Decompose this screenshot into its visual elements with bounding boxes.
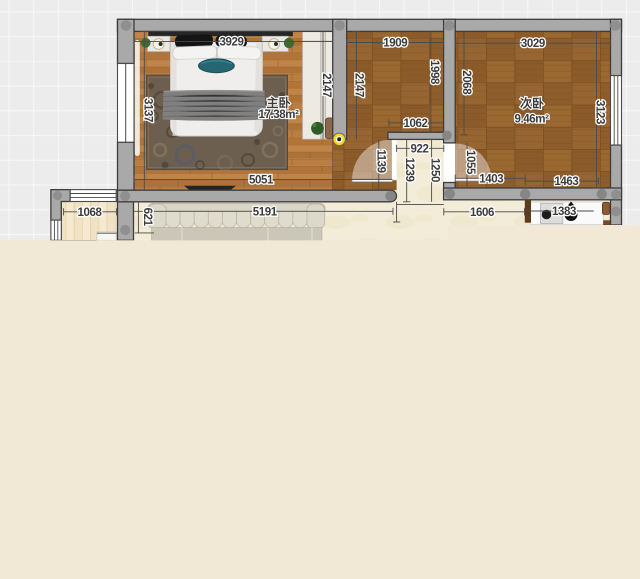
svg-text:2147: 2147 <box>320 73 332 97</box>
svg-text:1139: 1139 <box>375 149 387 172</box>
svg-text:1403: 1403 <box>479 173 503 185</box>
svg-text:3137: 3137 <box>141 98 153 122</box>
svg-text:1606: 1606 <box>470 207 494 219</box>
svg-text:1250: 1250 <box>429 158 441 182</box>
svg-text:1068: 1068 <box>78 207 103 219</box>
svg-text:1998: 1998 <box>428 60 440 85</box>
svg-text:621: 621 <box>141 208 153 227</box>
svg-text:2147: 2147 <box>352 73 364 97</box>
svg-text:3029: 3029 <box>521 38 545 50</box>
svg-text:1463: 1463 <box>554 176 578 188</box>
svg-text:922: 922 <box>411 143 429 155</box>
svg-text:2068: 2068 <box>460 70 472 95</box>
svg-text:1383: 1383 <box>552 206 576 218</box>
svg-text:1062: 1062 <box>404 118 428 130</box>
svg-text:5191: 5191 <box>253 206 278 218</box>
svg-text:17.38m²: 17.38m² <box>259 109 300 121</box>
svg-text:9.46m²: 9.46m² <box>515 114 550 126</box>
svg-text:1909: 1909 <box>383 38 407 50</box>
svg-text:次卧: 次卧 <box>520 96 544 111</box>
svg-text:3123: 3123 <box>594 100 606 124</box>
svg-text:主卧: 主卧 <box>267 95 291 110</box>
svg-text:5051: 5051 <box>249 175 274 187</box>
svg-text:3929: 3929 <box>220 37 244 49</box>
svg-text:1055: 1055 <box>464 150 476 175</box>
svg-text:1239: 1239 <box>403 158 415 182</box>
